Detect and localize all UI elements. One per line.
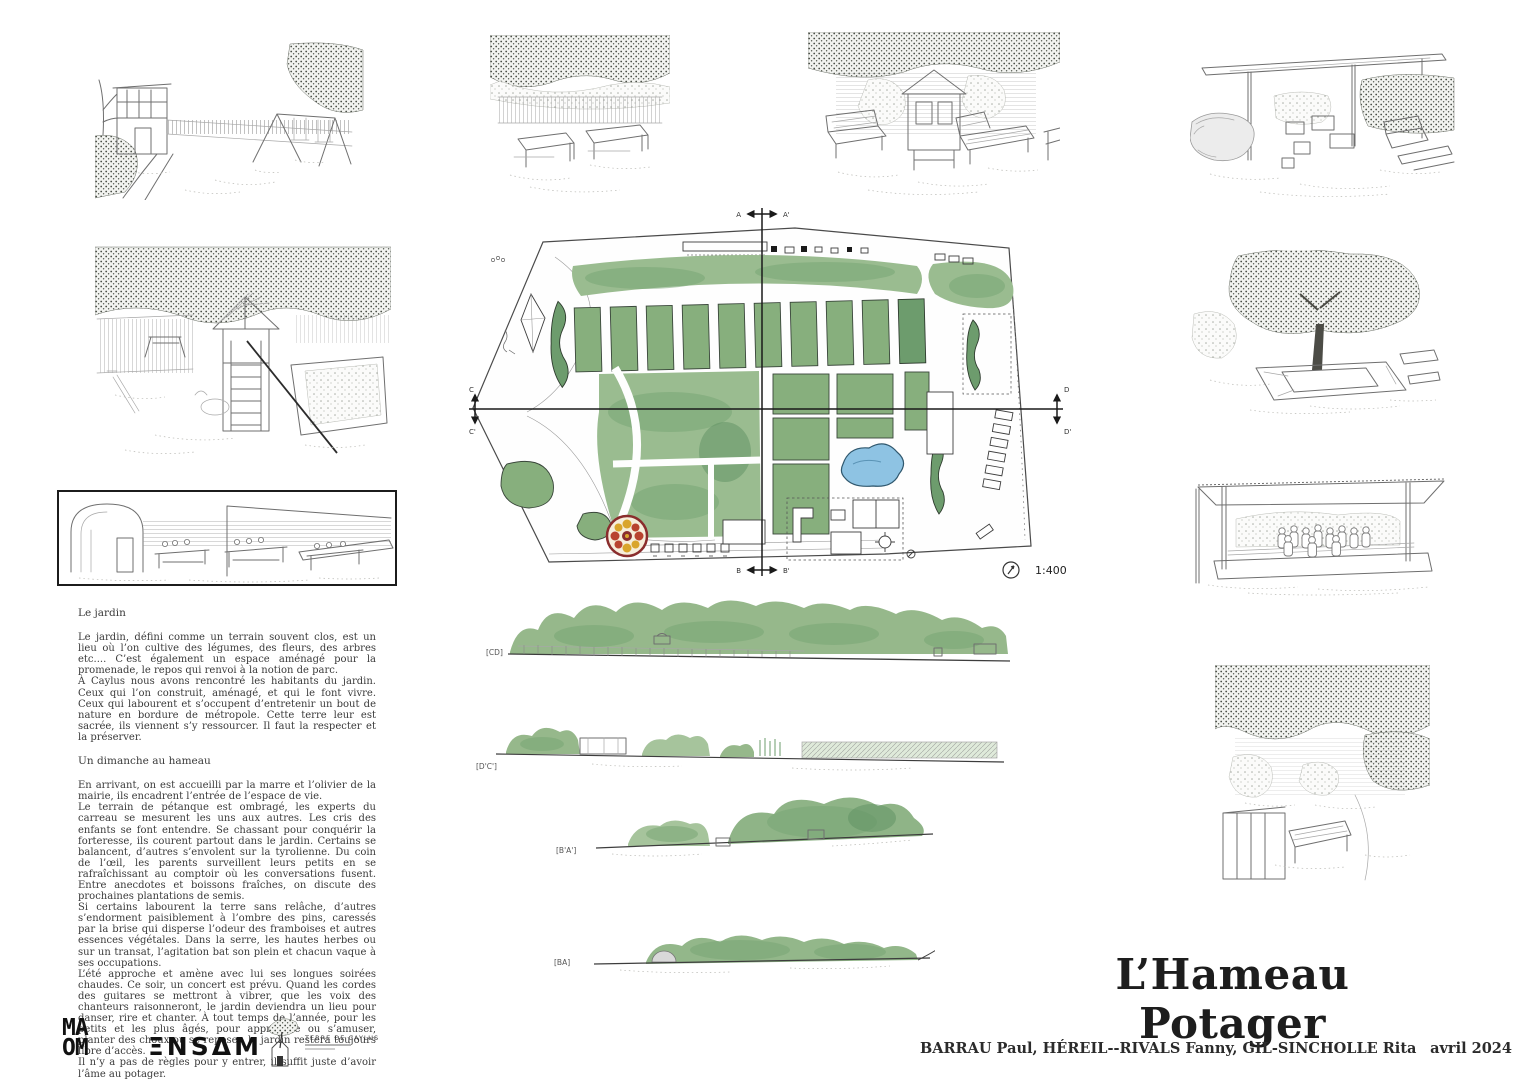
section-drawing-ba-prime <box>592 788 937 870</box>
section-drawing-cd <box>504 588 1014 676</box>
text-panel: Le jardin Le jardin, défini comme un ter… <box>78 608 376 1080</box>
site-plan: A A' B B' C C' D D' 1:400 <box>465 202 1085 602</box>
axis-label-d-prime: D' <box>1064 428 1071 436</box>
axis-label-c: C <box>469 386 474 394</box>
axis-label-b-prime: B' <box>783 567 790 575</box>
logo-terre-de-caylus: TERRE DE CAYLUS <box>264 1014 379 1070</box>
sketch-playhouse-loungers <box>808 32 1060 200</box>
plan-scale: 1:400 <box>1035 564 1067 577</box>
logo-maom-line2: OM <box>62 1038 88 1058</box>
paragraph: À Caylus nous avons rencontré les habita… <box>78 676 376 743</box>
axis-label-c-prime: C' <box>469 428 476 436</box>
footer: BARRAU Paul, HÉREIL--RIVALS Fanny, GIL-S… <box>920 1040 1512 1057</box>
paragraph: Le jardin, défini comme un terrain souve… <box>78 632 376 676</box>
logo-maom: MA OM <box>62 1018 88 1058</box>
logo-ensam: ΞNSΔM <box>148 1032 262 1061</box>
section-drawing-ba <box>590 922 935 980</box>
heading-le-jardin: Le jardin <box>78 608 376 619</box>
section-label-ba-prime: [B'A'] <box>556 846 576 855</box>
date: avril 2024 <box>1430 1040 1512 1057</box>
paragraph: Le terrain de pétanque est ombragé, les … <box>78 802 376 902</box>
logo-caylus-label: TERRE DE CAYLUS <box>305 1034 379 1042</box>
sketch-cabin-swing-garden <box>95 40 365 200</box>
axis-label-b: B <box>736 567 741 575</box>
sketch-treehouse-zipline <box>95 245 391 461</box>
logo-caylus-subline2 <box>305 1048 335 1050</box>
presentation-board: { "board": { "title": "L’Hameau Potager"… <box>0 0 1536 1085</box>
page-title: L’Hameau Potager <box>1040 950 1425 1048</box>
mandala-garden <box>607 516 647 556</box>
pine-tree-icon <box>264 1014 300 1070</box>
sketch-canteen-section <box>57 490 397 586</box>
axis-label-a-prime: A' <box>783 211 790 219</box>
sketch-garden-shed <box>1215 665 1430 885</box>
heading-un-dimanche: Un dimanche au hameau <box>78 756 376 767</box>
paragraph: En arrivant, on est accueilli par la mar… <box>78 780 376 802</box>
north-arrow-icon <box>1003 562 1019 578</box>
sketch-pergola-lounge <box>1190 38 1456 200</box>
axis-label-a: A <box>736 211 741 219</box>
logo-caylus-subline <box>305 1044 351 1046</box>
section-label-ba: [BA] <box>554 958 570 967</box>
sketch-concert-stage <box>1188 473 1456 597</box>
sketch-big-tree-planter <box>1190 250 1450 420</box>
axis-label-d: D <box>1064 386 1069 394</box>
section-label-cd: [CD] <box>486 648 503 657</box>
authors-credits: BARRAU Paul, HÉREIL--RIVALS Fanny, GIL-S… <box>920 1040 1416 1057</box>
paragraph: Si certains labourent la terre sans relâ… <box>78 902 376 969</box>
section-drawing-dc <box>492 712 1007 780</box>
sketch-tables-under-trees <box>490 35 670 200</box>
